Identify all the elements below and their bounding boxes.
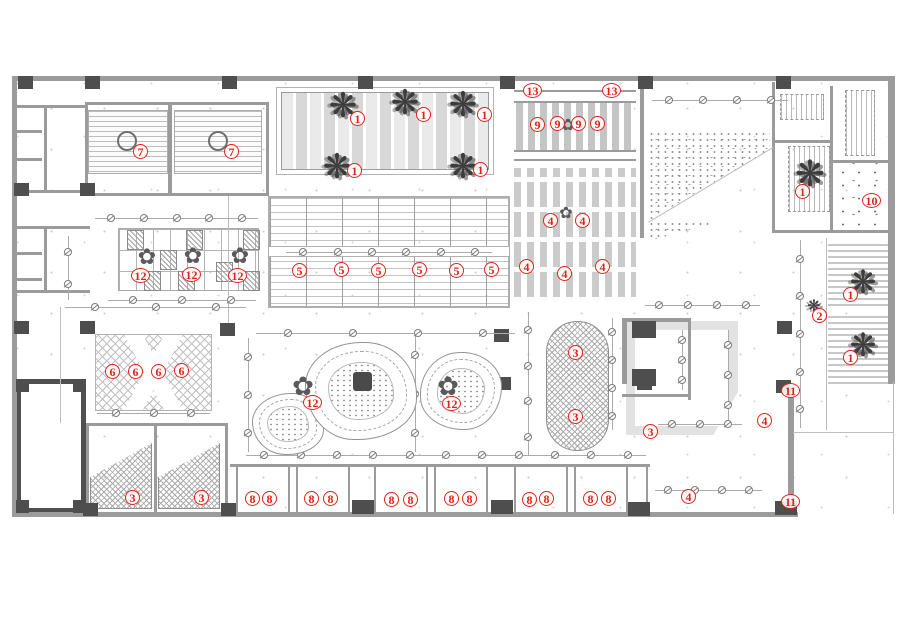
wall <box>85 102 269 105</box>
wall <box>426 467 428 512</box>
guide-line <box>826 238 827 430</box>
stairwell <box>16 379 86 513</box>
light-fixture-icon <box>668 420 676 428</box>
light-fixture-icon <box>406 451 414 459</box>
column <box>500 76 515 89</box>
ceiling-region-dots10 <box>833 163 890 229</box>
callout-1: 1 <box>347 163 362 178</box>
callout-8: 8 <box>601 491 616 506</box>
light-fixture-icon <box>334 248 342 256</box>
callout-12: 12 <box>182 267 201 282</box>
callout-8: 8 <box>384 492 399 507</box>
wall <box>622 394 690 397</box>
wall <box>514 467 516 512</box>
callout-9: 9 <box>550 116 565 131</box>
callout-8: 8 <box>323 491 338 506</box>
light-fixture-icon <box>608 412 616 420</box>
wall <box>266 102 269 196</box>
callout-7: 7 <box>224 144 239 159</box>
column <box>776 76 791 89</box>
light-track <box>68 236 69 300</box>
ceiling-region-vlines <box>780 94 824 120</box>
callout-1: 1 <box>473 162 488 177</box>
callout-9: 9 <box>530 117 545 132</box>
callout-12: 12 <box>442 396 461 411</box>
light-track <box>286 252 492 253</box>
callout-11: 11 <box>781 494 800 509</box>
callout-5: 5 <box>334 262 349 277</box>
floor-plan: ❋❋❋❋❋❋❋❋❋✿✿✿✿✿✿✿771111111113139999444444… <box>0 0 906 634</box>
callout-12: 12 <box>228 268 247 283</box>
callout-8: 8 <box>304 491 319 506</box>
drawing-page: ❋❋❋❋❋❋❋❋❋✿✿✿✿✿✿✿771111111113139999444444… <box>0 0 906 634</box>
callout-5: 5 <box>449 263 464 278</box>
light-fixture-icon <box>718 486 726 494</box>
wall <box>12 76 17 516</box>
wall <box>12 290 90 293</box>
light-fixture-icon <box>745 486 753 494</box>
column <box>777 321 792 334</box>
light-fixture-icon <box>796 330 804 338</box>
light-fixture-icon <box>64 248 72 256</box>
column <box>16 500 29 513</box>
callout-6: 6 <box>128 364 143 379</box>
wall <box>288 467 290 512</box>
callout-8: 8 <box>245 491 260 506</box>
column <box>352 500 374 514</box>
light-fixture-icon <box>724 401 732 409</box>
plant-icon: ❋ <box>446 88 480 122</box>
callout-8: 8 <box>262 491 277 506</box>
ceiling-region-xhatch <box>546 321 609 451</box>
light-fixture-icon <box>724 341 732 349</box>
callout-3: 3 <box>194 490 209 505</box>
light-fixture-icon <box>515 451 523 459</box>
callout-1: 1 <box>843 287 858 302</box>
light-fixture-icon <box>140 214 148 222</box>
light-fixture-icon <box>696 420 704 428</box>
column <box>632 369 656 386</box>
light-fixture-icon <box>699 96 707 104</box>
light-fixture-icon <box>178 296 186 304</box>
wall <box>348 467 350 512</box>
callout-3: 3 <box>568 345 583 360</box>
callout-3: 3 <box>643 424 658 439</box>
column <box>18 76 33 89</box>
wall <box>230 464 650 467</box>
light-fixture-icon <box>713 301 721 309</box>
light-fixture-icon <box>678 356 686 364</box>
light-fixture-icon <box>479 329 487 337</box>
column <box>73 500 86 513</box>
wall <box>86 423 228 426</box>
light-fixture-icon <box>796 255 804 263</box>
column <box>14 183 29 196</box>
light-fixture-icon <box>129 296 137 304</box>
wall <box>514 150 636 152</box>
light-fixture-icon <box>524 362 532 370</box>
guide-line <box>793 432 893 433</box>
callout-4: 4 <box>543 213 558 228</box>
wall <box>16 252 42 255</box>
column <box>221 503 236 516</box>
ceiling-region-slatstag <box>514 168 636 302</box>
callout-4: 4 <box>681 489 696 504</box>
callout-8: 8 <box>522 492 537 507</box>
column <box>494 329 509 342</box>
guide-line <box>893 382 894 514</box>
light-fixture-icon <box>238 214 246 222</box>
wall <box>830 86 833 232</box>
wall <box>832 160 894 163</box>
callout-9: 9 <box>571 116 586 131</box>
callout-8: 8 <box>444 491 459 506</box>
column <box>632 321 656 338</box>
cloud-ceiling <box>305 342 417 440</box>
wall <box>640 80 644 238</box>
callout-1: 1 <box>795 184 810 199</box>
light-fixture-icon <box>665 96 673 104</box>
light-fixture-icon <box>742 301 750 309</box>
wall <box>12 226 90 229</box>
light-fixture-icon <box>212 303 220 311</box>
light-fixture-icon <box>442 451 450 459</box>
light-fixture-icon <box>150 409 158 417</box>
flower-medallion-icon: ✿ <box>136 247 158 269</box>
callout-4: 4 <box>757 413 772 428</box>
light-fixture-icon <box>173 214 181 222</box>
callout-5: 5 <box>412 262 427 277</box>
light-fixture-icon <box>733 96 741 104</box>
callout-4: 4 <box>519 259 534 274</box>
callout-8: 8 <box>403 492 418 507</box>
callout-11: 11 <box>781 383 800 398</box>
light-fixture-icon <box>724 371 732 379</box>
callout-1: 1 <box>350 111 365 126</box>
light-fixture-icon <box>64 280 72 288</box>
light-fixture-icon <box>678 336 686 344</box>
light-fixture-icon <box>437 248 445 256</box>
wall <box>16 130 42 133</box>
callout-5: 5 <box>484 262 499 277</box>
guide-line <box>60 307 61 423</box>
wall <box>514 101 636 103</box>
wall <box>236 467 238 512</box>
callout-6: 6 <box>151 364 166 379</box>
column <box>80 183 95 196</box>
column <box>220 323 235 336</box>
wall <box>566 467 568 512</box>
wall <box>374 467 376 512</box>
light-fixture-icon <box>767 96 775 104</box>
light-fixture-icon <box>414 329 422 337</box>
light-fixture-icon <box>112 409 120 417</box>
wall <box>772 230 832 233</box>
light-fixture-icon <box>678 376 686 384</box>
light-fixture-icon <box>244 429 252 437</box>
flower-medallion-icon: ✿ <box>182 246 204 268</box>
wall <box>85 193 269 196</box>
callout-8: 8 <box>462 491 477 506</box>
callout-12: 12 <box>131 268 150 283</box>
column <box>16 379 29 392</box>
light-fixture-icon <box>333 451 341 459</box>
wall <box>688 318 691 400</box>
callout-3: 3 <box>568 409 583 424</box>
wall <box>44 105 47 193</box>
light-fixture-icon <box>152 303 160 311</box>
light-fixture-icon <box>411 429 419 437</box>
callout-2: 2 <box>812 308 827 323</box>
wall <box>12 512 798 517</box>
wall <box>772 82 775 232</box>
callout-13: 13 <box>602 83 621 98</box>
column <box>222 76 237 89</box>
callout-8: 8 <box>583 491 598 506</box>
light-fixture-icon <box>724 420 732 428</box>
light-fixture-icon <box>368 248 376 256</box>
column <box>628 502 650 516</box>
wall <box>772 140 832 143</box>
callout-12: 12 <box>303 395 322 410</box>
wall <box>44 226 47 292</box>
light-fixture-icon <box>796 368 804 376</box>
ceiling-tile <box>160 250 177 270</box>
callout-5: 5 <box>371 263 386 278</box>
wall <box>225 423 228 515</box>
flower-medallion-icon: ✿ <box>558 205 574 221</box>
column <box>73 379 86 392</box>
wall <box>622 318 627 384</box>
light-fixture-icon <box>608 328 616 336</box>
light-fixture-icon <box>244 391 252 399</box>
callout-1: 1 <box>843 350 858 365</box>
wall <box>16 278 42 281</box>
callout-4: 4 <box>557 266 572 281</box>
cloud-ceiling <box>420 352 502 430</box>
wall <box>154 423 157 515</box>
wall <box>168 102 172 196</box>
callout-1: 1 <box>416 107 431 122</box>
wall <box>832 230 892 233</box>
flower-medallion-icon: ✿ <box>229 246 251 268</box>
wall <box>434 467 436 512</box>
callout-9: 9 <box>590 116 605 131</box>
light-fixture-icon <box>608 384 616 392</box>
wall <box>486 467 488 512</box>
table-block <box>353 372 372 391</box>
cloud-ceiling-stipple <box>328 362 394 420</box>
wall <box>12 76 895 81</box>
column <box>14 321 29 334</box>
light-fixture-icon <box>624 451 632 459</box>
light-fixture-icon <box>608 356 616 364</box>
wall <box>12 105 86 108</box>
ceiling-region-vlines <box>845 90 875 156</box>
light-fixture-icon <box>471 248 479 256</box>
column <box>358 76 373 89</box>
wall <box>296 467 298 512</box>
cloud-ceiling-stipple <box>267 406 309 442</box>
callout-4: 4 <box>575 213 590 228</box>
light-fixture-icon <box>524 326 532 334</box>
wall <box>514 159 636 161</box>
callout-10: 10 <box>862 193 881 208</box>
callout-6: 6 <box>174 363 189 378</box>
column <box>638 76 653 89</box>
callout-6: 6 <box>105 364 120 379</box>
wall <box>574 467 576 512</box>
callout-13: 13 <box>523 83 542 98</box>
callout-7: 7 <box>133 144 148 159</box>
callout-5: 5 <box>292 263 307 278</box>
callout-3: 3 <box>125 490 140 505</box>
callout-8: 8 <box>539 491 554 506</box>
column <box>80 321 95 334</box>
column <box>491 500 513 514</box>
light-fixture-icon <box>244 353 252 361</box>
wall <box>16 158 42 161</box>
wall <box>85 102 88 196</box>
light-track <box>256 333 515 334</box>
callout-4: 4 <box>595 259 610 274</box>
wall <box>86 423 89 515</box>
column <box>85 76 100 89</box>
callout-1: 1 <box>477 107 492 122</box>
